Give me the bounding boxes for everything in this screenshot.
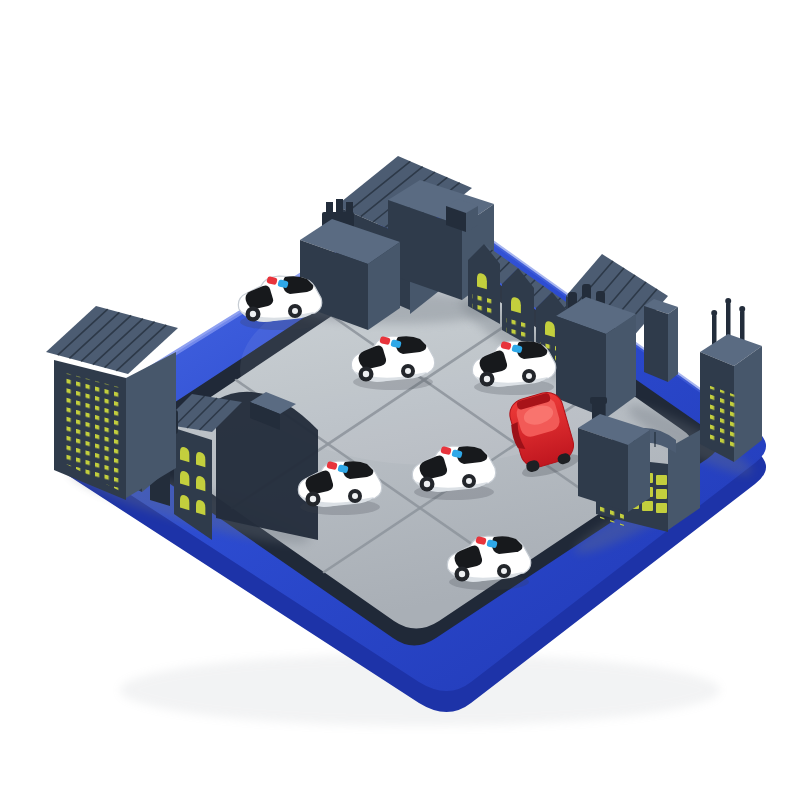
building-high-rise-antennas: [700, 298, 762, 462]
thin-slab: [644, 299, 678, 382]
board-game-scene: [0, 0, 800, 800]
high-rise-dot-windows: [46, 306, 178, 500]
police-car-1: [238, 276, 321, 330]
product-photo: [0, 0, 800, 800]
